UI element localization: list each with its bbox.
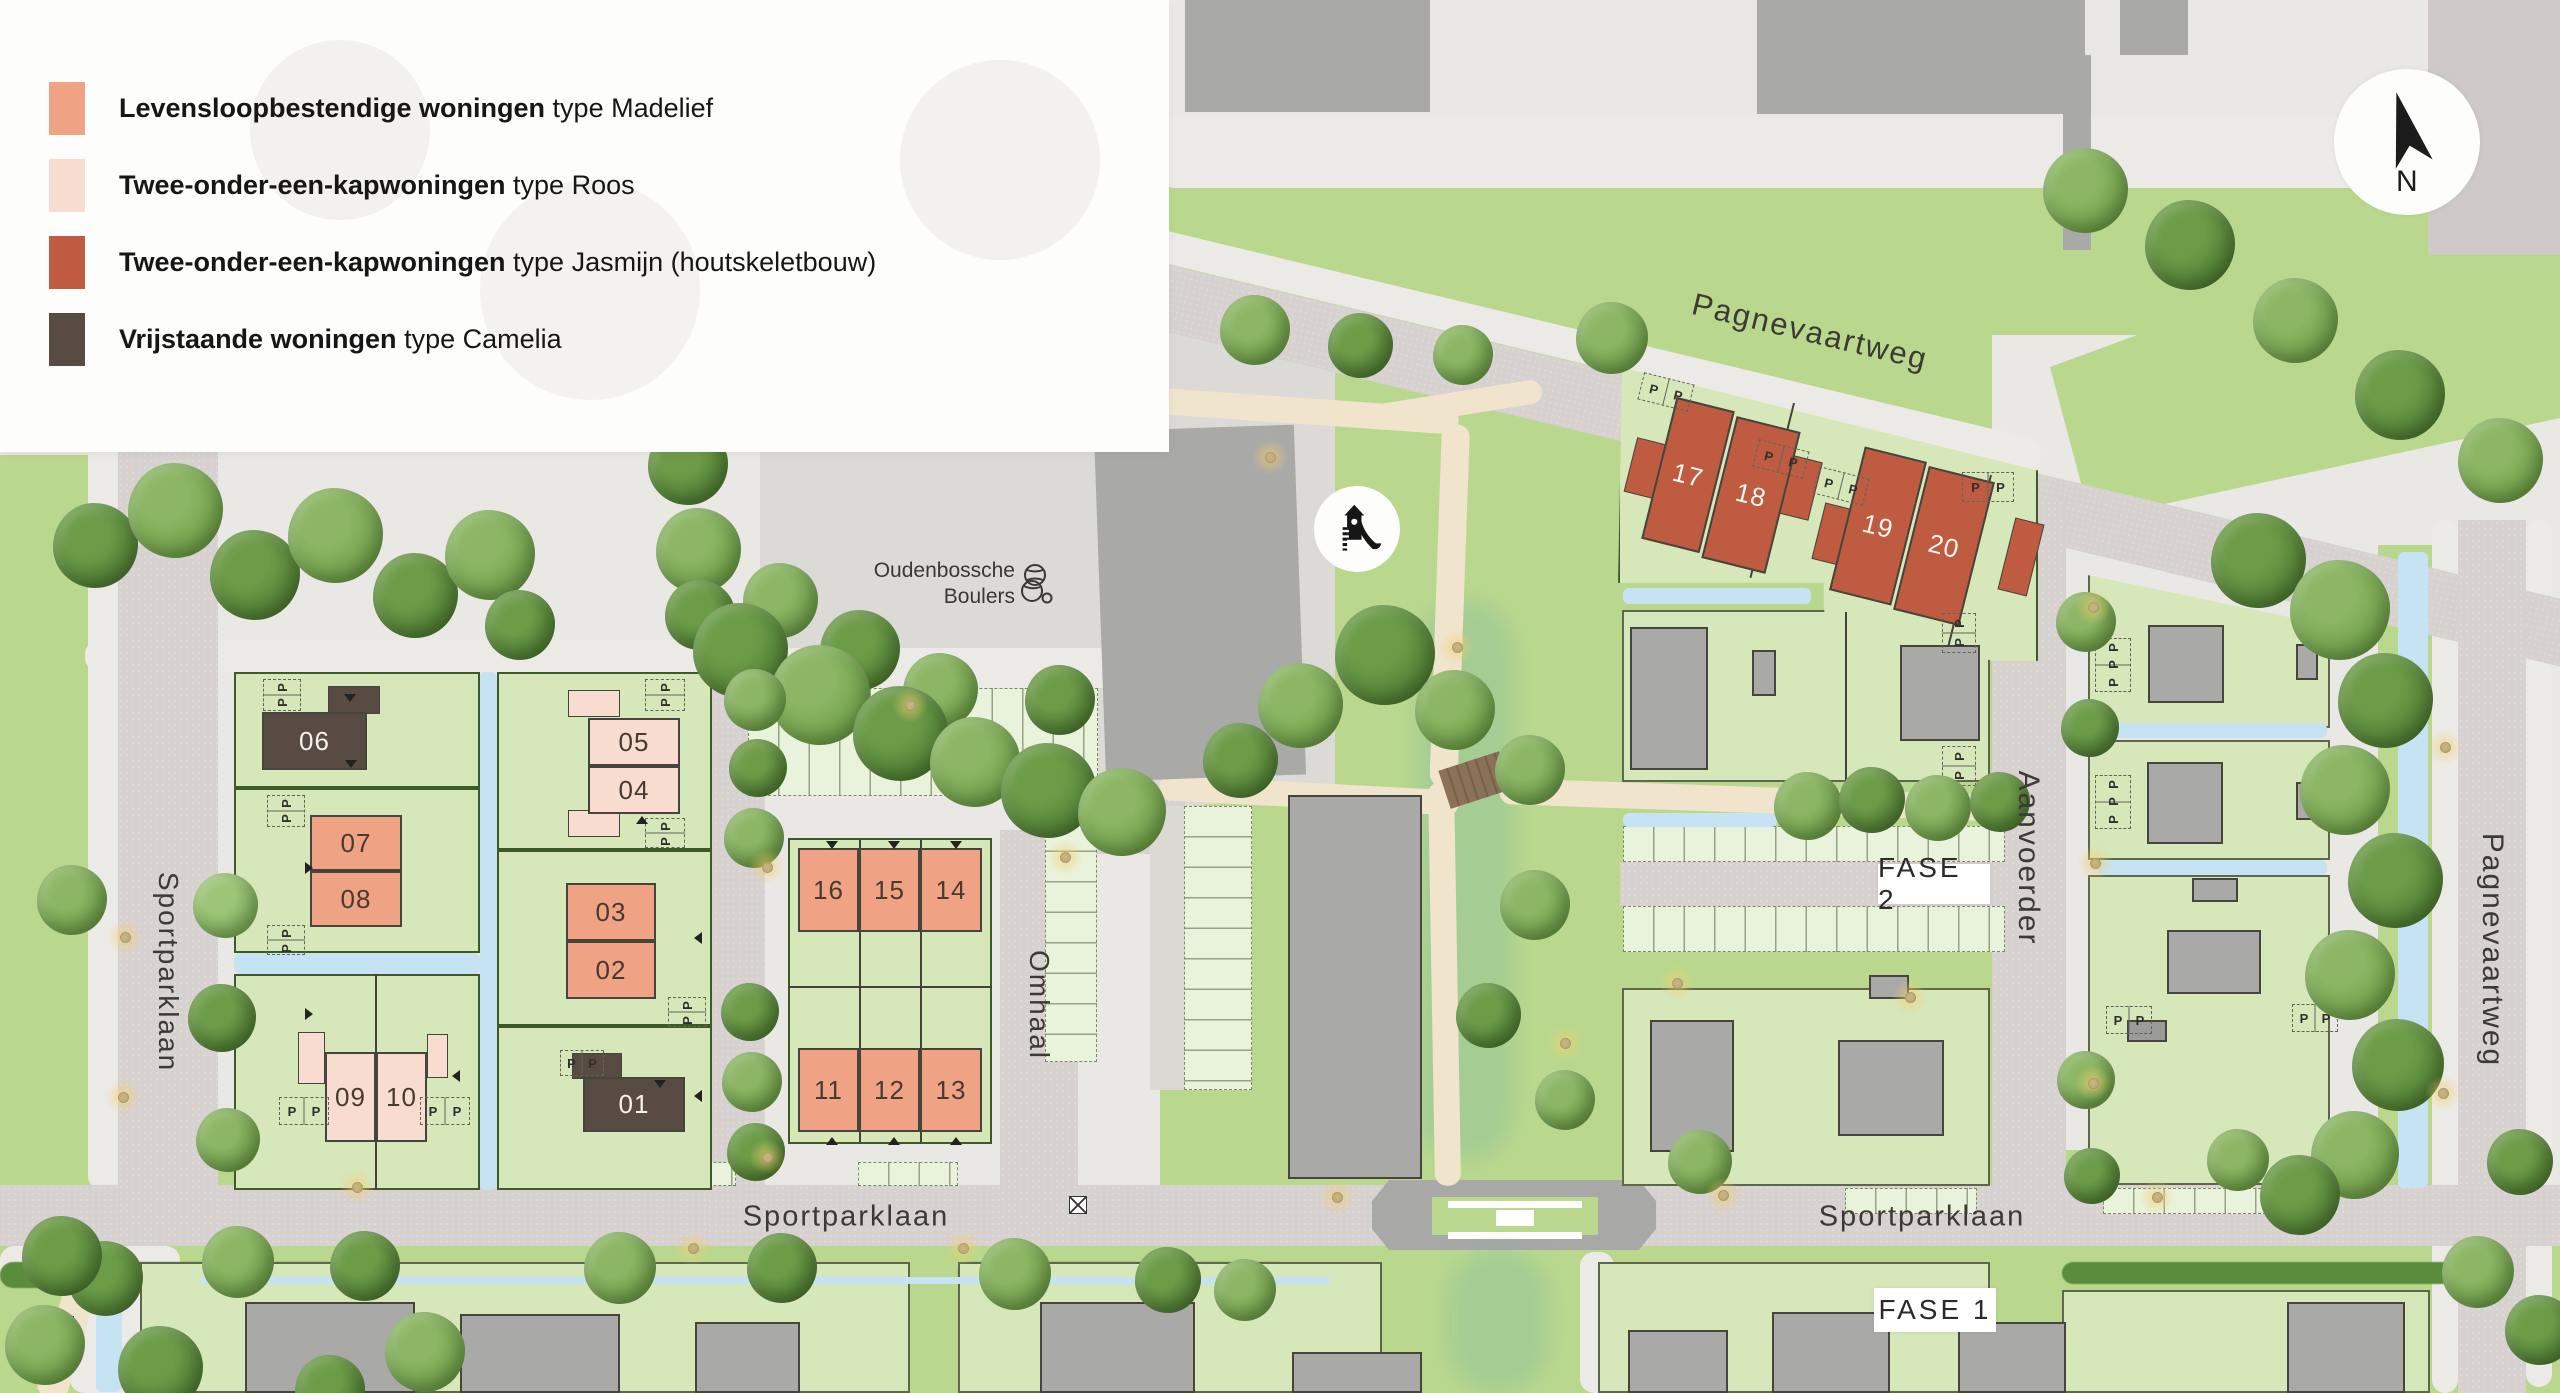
street-lamp-icon — [2438, 1088, 2449, 1099]
parking-p-letter: P — [2105, 661, 2120, 670]
plot-number: 13 — [936, 1075, 967, 1106]
plot-number: 15 — [874, 875, 905, 906]
plot-number: 12 — [874, 1075, 905, 1106]
tree-icon — [128, 463, 223, 558]
tree-icon — [1495, 735, 1565, 805]
entrance-arrow-icon — [344, 694, 356, 702]
gray-building — [1288, 795, 1422, 1179]
parking-p-marker: PP — [560, 1050, 604, 1076]
boulers-label: Oudenbossche Boulers — [830, 558, 1015, 610]
street-lamp-icon — [2088, 602, 2099, 613]
water-canal — [234, 953, 480, 974]
playground-marker — [1314, 486, 1400, 572]
street-lamp-icon — [688, 1243, 699, 1254]
tree-icon — [2305, 930, 2395, 1020]
tree-icon — [1576, 302, 1648, 374]
parking-p-letter: P — [2300, 1011, 2309, 1026]
crossing-stripe — [1496, 1210, 1534, 1226]
boulers-line2: Boulers — [830, 584, 1015, 610]
plot-house-09[interactable]: 09 — [325, 1052, 376, 1142]
parking-p-letter: P — [1763, 448, 1775, 465]
tree-icon — [485, 590, 555, 660]
street-lamp-icon — [1265, 452, 1276, 463]
tree-icon — [2260, 1155, 2340, 1235]
street-lamp-icon — [2088, 1078, 2099, 1089]
fase1-label: FASE 1 — [1874, 1288, 1996, 1332]
street-label-sportparklaan: Sportparklaan — [152, 872, 184, 1072]
parking-p-letter: P — [288, 1104, 297, 1119]
street-lamp-icon — [1905, 992, 1916, 1003]
entrance-arrow-icon — [345, 760, 357, 768]
gray-building — [2167, 930, 2261, 994]
legend-swatch — [49, 82, 85, 135]
tree-icon — [2061, 699, 2119, 757]
tree-icon — [5, 1305, 85, 1385]
tree-icon — [2290, 560, 2390, 660]
street-lamp-icon — [1672, 978, 1683, 989]
gray-building — [2287, 1302, 2405, 1393]
tree-icon — [2064, 1148, 2120, 1204]
street-label-sportparklaan: Sportparklaan — [743, 1201, 950, 1234]
street-label-aanvoerder: Aanvoerder — [2011, 770, 2045, 945]
plot-house-11[interactable]: 11 — [798, 1048, 859, 1132]
tree-icon — [1258, 663, 1343, 748]
parking-p-marker: PP — [279, 1097, 329, 1125]
gray-building — [1292, 1352, 1422, 1393]
street-lamp-icon — [2440, 742, 2451, 753]
gray-building — [695, 1322, 800, 1393]
house-annex — [568, 810, 620, 837]
water-canal — [1623, 588, 1811, 604]
plot-house-07[interactable]: 07 — [310, 815, 402, 871]
street-lamp-icon — [1718, 1190, 1729, 1201]
plot-house-03[interactable]: 03 — [566, 883, 656, 941]
parking-p-marker: PP — [263, 679, 301, 711]
parking-p-marker: PP — [267, 925, 305, 955]
gray-building — [1900, 645, 1980, 741]
street-lamp-icon — [118, 1092, 129, 1103]
parking-p-letter: P — [278, 944, 293, 953]
parking-p-marker: PP — [420, 1097, 470, 1125]
tree-icon — [2458, 418, 2543, 503]
parking-p-letter: P — [312, 1104, 321, 1119]
parking-p-letter: P — [567, 1056, 576, 1071]
plot-number: 05 — [619, 727, 650, 758]
legend-label: Twee-onder-een-kapwoningen type Roos — [119, 170, 635, 201]
tree-icon — [1135, 1247, 1201, 1313]
gray-building — [1040, 1302, 1195, 1393]
plot-number: 02 — [596, 955, 627, 986]
tree-icon — [1839, 767, 1905, 833]
plot-house-13[interactable]: 13 — [920, 1048, 982, 1132]
compass-n-text: N — [2396, 165, 2418, 198]
parking-p-letter: P — [1787, 454, 1799, 471]
plot-number: 14 — [936, 875, 967, 906]
parking-p-marker: PP — [1942, 613, 1976, 653]
legend-label: Levensloopbestendige woningen type Madel… — [119, 93, 713, 124]
parking-p-letter: P — [278, 799, 293, 808]
parking-p-letter: P — [588, 1056, 597, 1071]
parking-p-letter: P — [429, 1104, 438, 1119]
sidewalk-road — [88, 360, 118, 1190]
tree-icon — [53, 503, 138, 588]
plot-number: 11 — [814, 1075, 843, 1106]
legend-item-2: Twee-onder-een-kapwoningen type Jasmijn … — [49, 236, 1149, 289]
parking-lane — [1150, 806, 1184, 1090]
plot-boundary — [1845, 612, 1847, 782]
street-lamp-icon — [905, 700, 916, 711]
legend-item-0: Levensloopbestendige woningen type Madel… — [49, 82, 1149, 135]
tree-icon — [196, 1108, 260, 1172]
parking-p-marker: PP — [645, 818, 685, 848]
plot-house-15[interactable]: 15 — [859, 848, 920, 932]
gray-building — [1630, 627, 1708, 770]
gray-building — [2148, 625, 2224, 703]
playground-slide-icon — [1330, 502, 1384, 556]
legend-label: Vrijstaande woningen type Camelia — [119, 324, 562, 355]
tree-icon — [373, 553, 458, 638]
plot-number: 04 — [619, 775, 650, 806]
tree-icon — [747, 1233, 817, 1303]
gray-building — [1772, 1312, 1890, 1393]
tree-icon — [2043, 148, 2128, 233]
tree-icon — [1433, 325, 1493, 385]
tree-icon — [1415, 670, 1495, 750]
tree-icon — [2338, 653, 2433, 748]
legend-swatch — [49, 236, 85, 289]
tree-icon — [2487, 1129, 2553, 1195]
parking-p-letter: P — [278, 814, 293, 823]
parking-p-letter: P — [2105, 798, 2120, 807]
parking-p-letter: P — [1951, 752, 1966, 761]
plot-house-04[interactable]: 04 — [588, 766, 680, 814]
legend-item-1: Twee-onder-een-kapwoningen type Roos — [49, 159, 1149, 212]
parking-stalls — [858, 1162, 958, 1186]
gray-building — [460, 1314, 620, 1393]
entrance-arrow-icon — [888, 1137, 900, 1145]
plot-number: 09 — [335, 1082, 366, 1113]
tree-icon — [1214, 1259, 1276, 1321]
street-label-omhaal: Omhaal — [1023, 950, 1055, 1060]
tree-icon — [1220, 295, 1290, 365]
plot-number: 03 — [596, 897, 627, 928]
fase2-label: FASE 2 — [1878, 864, 1990, 904]
plot-number: 20 — [1925, 527, 1963, 565]
street-lamp-icon — [762, 1152, 773, 1163]
parking-p-letter: P — [2136, 1013, 2145, 1028]
plot-number: 01 — [619, 1089, 650, 1120]
legend-label: Twee-onder-een-kapwoningen type Jasmijn … — [119, 247, 876, 278]
parking-p-letter: P — [657, 822, 672, 831]
plot-house-12[interactable]: 12 — [859, 1048, 920, 1132]
parking-p-letter: P — [453, 1104, 462, 1119]
entrance-arrow-icon — [888, 841, 900, 849]
plot-number: 08 — [341, 884, 372, 915]
tree-icon — [1025, 665, 1095, 735]
tree-icon — [188, 984, 256, 1052]
water-canal — [2097, 723, 2327, 738]
parking-p-marker: PP — [645, 679, 685, 711]
entrance-arrow-icon — [950, 1137, 962, 1145]
plot-house-01[interactable]: 01 — [583, 1077, 685, 1132]
street-lamp-icon — [762, 862, 773, 873]
plot-house-05[interactable]: 05 — [588, 718, 680, 766]
tree-icon — [1905, 775, 1971, 841]
tree-icon — [288, 488, 383, 583]
plot-number: 19 — [1859, 507, 1897, 545]
house-annex — [298, 1032, 325, 1084]
legend-swatch — [49, 159, 85, 212]
plot-boundary — [788, 986, 992, 988]
legend-panel: Levensloopbestendige woningen type Madel… — [0, 0, 1169, 452]
street-label-pagnevaartweg: Pagnevaartweg — [2475, 833, 2509, 1067]
plot-number: 18 — [1732, 476, 1770, 514]
street-lamp-icon — [1452, 642, 1463, 653]
parking-p-letter: P — [2105, 815, 2120, 824]
tree-icon — [2145, 200, 2235, 290]
crossing-stripe — [1448, 1232, 1582, 1239]
plot-house-08[interactable]: 08 — [310, 871, 402, 927]
tree-icon — [729, 739, 787, 797]
house-annex — [427, 1034, 448, 1078]
plot-number: 17 — [1669, 456, 1707, 494]
parking-p-marker: PP — [668, 997, 706, 1027]
tree-icon — [722, 1052, 782, 1112]
tree-icon — [721, 983, 779, 1041]
gray-building — [1752, 650, 1776, 696]
entrance-arrow-icon — [694, 932, 702, 944]
tree-icon — [445, 510, 535, 600]
entrance-arrow-icon — [654, 1080, 666, 1088]
parking-p-letter: P — [657, 683, 672, 692]
parking-p-letter: P — [2105, 780, 2120, 789]
gray-building — [1958, 1322, 2066, 1393]
parking-p-letter: P — [1951, 619, 1966, 628]
plot-house-14[interactable]: 14 — [920, 848, 982, 932]
sidewalk-road — [1160, 118, 2440, 188]
parking-p-letter: P — [274, 698, 289, 707]
tree-icon — [1774, 772, 1842, 840]
site-plan-map: 0102030405060708091011121314151617181920… — [0, 0, 2560, 1393]
gray-building — [2120, 0, 2188, 55]
parking-p-marker: PP — [267, 795, 305, 827]
entrance-arrow-icon — [636, 816, 648, 824]
street-lamp-icon — [1060, 852, 1071, 863]
parking-p-letter: P — [278, 929, 293, 938]
hedge-strip — [2062, 1262, 2454, 1284]
tree-icon — [1456, 983, 1521, 1048]
parking-stalls — [1184, 806, 1252, 1090]
tree-icon — [979, 1238, 1051, 1310]
tree-icon — [330, 1231, 400, 1301]
tree-icon — [2355, 350, 2445, 440]
tree-icon — [1535, 1070, 1595, 1130]
plot-number: 16 — [813, 875, 844, 906]
parking-p-letter: P — [679, 1016, 694, 1025]
tree-icon — [37, 865, 107, 935]
tree-icon — [193, 873, 258, 938]
parking-p-letter: P — [2105, 678, 2120, 687]
tree-icon — [1203, 723, 1278, 798]
legend-swatch — [49, 313, 85, 366]
street-lamp-icon — [120, 932, 131, 943]
plot-number: 10 — [386, 1082, 417, 1113]
tree-icon — [2442, 1236, 2514, 1308]
gray-building — [1185, 0, 1430, 112]
entrance-arrow-icon — [826, 841, 838, 849]
tree-icon — [1500, 870, 1570, 940]
parking-p-letter: P — [657, 837, 672, 846]
parking-p-letter: P — [274, 683, 289, 692]
plot-house-16[interactable]: 16 — [798, 848, 859, 932]
tree-icon — [210, 530, 300, 620]
compass: N — [2334, 69, 2480, 215]
gray-building — [1757, 0, 2085, 114]
parking-p-letter: P — [1672, 387, 1684, 404]
north-arrow-icon: N — [2334, 69, 2480, 215]
plot-house-02[interactable]: 02 — [566, 941, 656, 999]
tree-icon — [22, 1216, 102, 1296]
water-canal — [1623, 813, 1777, 827]
tree-icon — [584, 1232, 656, 1304]
street-lamp-icon — [1332, 1192, 1343, 1203]
parking-p-letter: P — [2105, 643, 2120, 652]
gray-building — [2147, 762, 2223, 844]
parking-p-letter: P — [1996, 480, 2005, 495]
street-lamp-icon — [352, 1182, 363, 1193]
entrance-arrow-icon — [305, 862, 313, 874]
legend-item-3: Vrijstaande woningen type Camelia — [49, 313, 1149, 366]
gray-building — [1838, 1040, 1944, 1136]
tree-icon — [724, 669, 786, 731]
gray-building — [2192, 878, 2238, 902]
plot-number: 06 — [299, 726, 330, 757]
tree-icon — [2207, 1129, 2269, 1191]
tree-icon — [202, 1226, 274, 1298]
water-canal — [2097, 860, 2327, 875]
parking-p-letter: P — [679, 1001, 694, 1010]
street-label-sportparklaan: Sportparklaan — [1819, 1201, 2026, 1234]
fase2-text: FASE 2 — [1878, 852, 1990, 916]
parking-p-letter: P — [1648, 381, 1660, 398]
parking-p-letter: P — [657, 698, 672, 707]
parking-p-letter: P — [1951, 638, 1966, 647]
boules-icon — [1018, 562, 1060, 606]
entrance-arrow-icon — [950, 841, 962, 849]
tree-icon — [2253, 278, 2338, 363]
parking-p-letter: P — [1847, 481, 1859, 498]
parking-p-marker: PP — [2106, 1006, 2152, 1034]
tree-icon — [2348, 833, 2443, 928]
street-lamp-icon — [1560, 1038, 1571, 1049]
tree-icon — [2300, 745, 2390, 835]
street-lamp-icon — [2152, 1192, 2163, 1203]
entrance-arrow-icon — [452, 1070, 460, 1082]
entrance-arrow-icon — [826, 1137, 838, 1145]
tree-icon — [1078, 768, 1166, 856]
tree-icon — [385, 1312, 465, 1392]
boulers-line1: Oudenbossche — [830, 558, 1015, 584]
entrance-arrow-icon — [305, 1008, 313, 1020]
street-lamp-icon — [958, 1243, 969, 1254]
crossing-stripe — [1448, 1201, 1582, 1208]
tree-icon — [2211, 513, 2306, 608]
tree-icon — [1328, 313, 1393, 378]
parking-p-letter: P — [2114, 1013, 2123, 1028]
bench-icon — [1069, 1196, 1087, 1214]
parking-p-letter: P — [1971, 480, 1980, 495]
entrance-arrow-icon — [694, 1090, 702, 1102]
fase1-text: FASE 1 — [1879, 1294, 1992, 1326]
plot-number: 07 — [341, 828, 372, 859]
parking-p-letter: P — [1823, 475, 1835, 492]
parking-p-marker: PPP — [2095, 775, 2131, 829]
parking-p-marker: PP — [1962, 472, 2014, 502]
street-lamp-icon — [2090, 858, 2101, 869]
drainage-swale — [1448, 1248, 1548, 1393]
gray-building — [1628, 1330, 1728, 1393]
house-annex — [568, 690, 620, 717]
water-canal — [480, 672, 497, 1190]
